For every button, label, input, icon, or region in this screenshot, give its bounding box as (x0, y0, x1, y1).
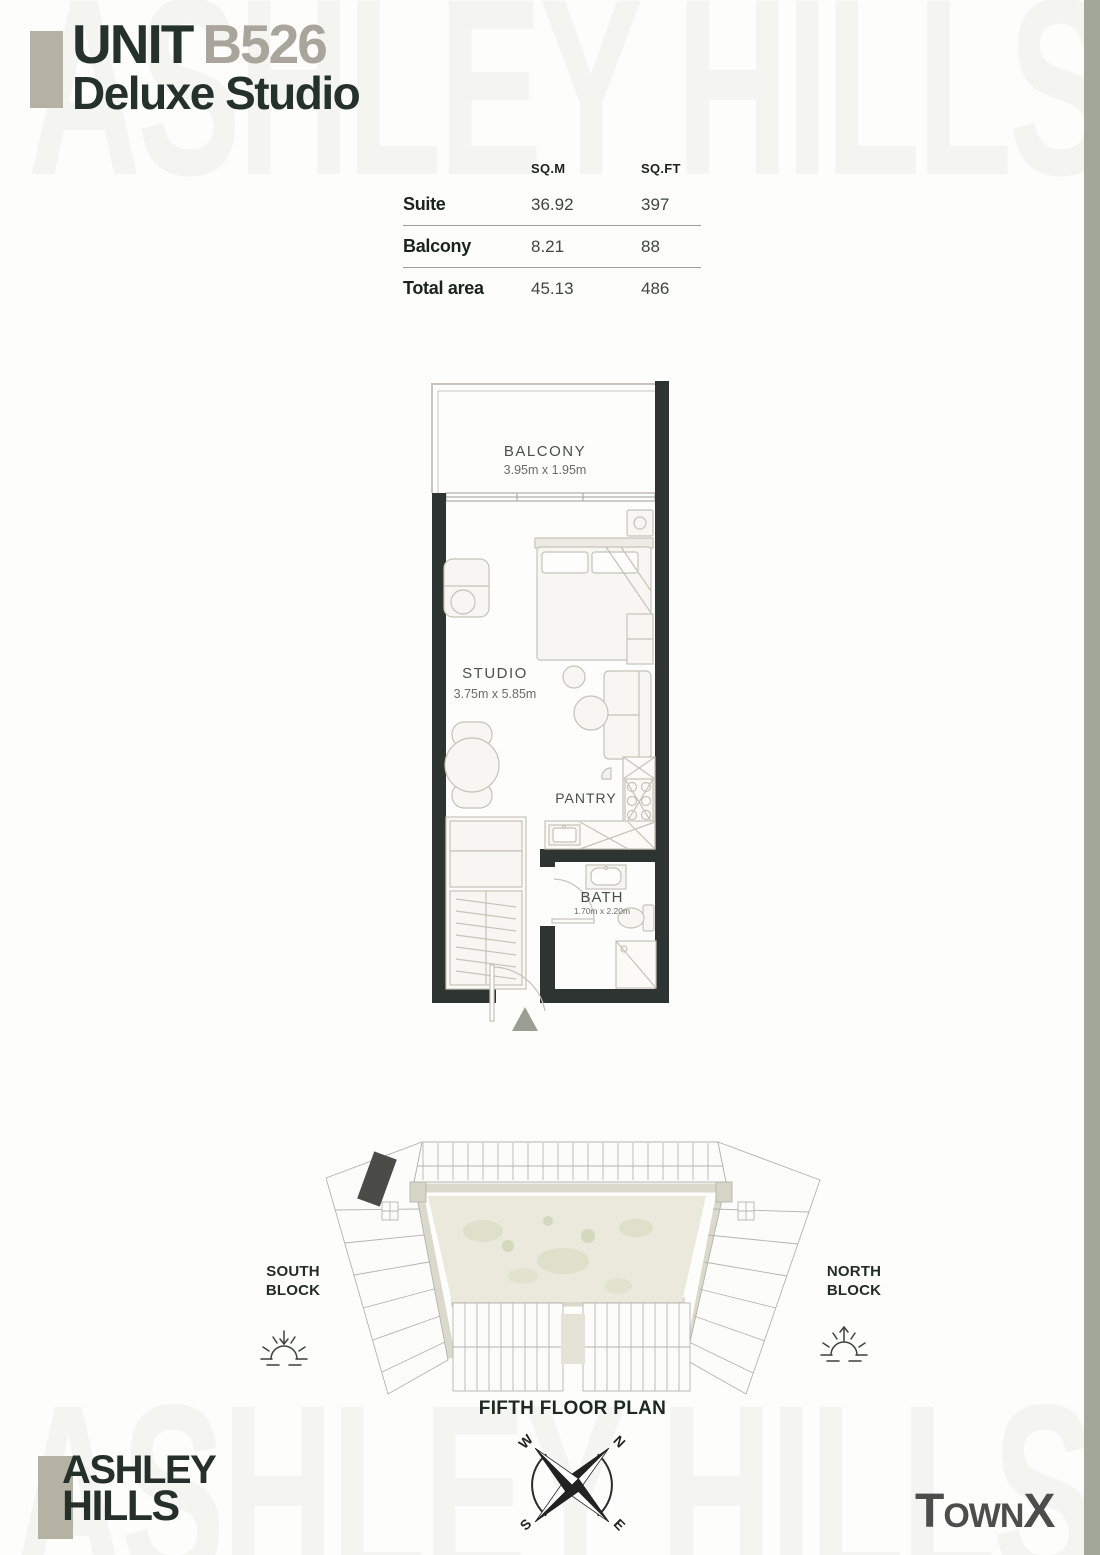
row-label: Total area (403, 278, 531, 299)
dining-set (445, 722, 499, 808)
poufs (563, 666, 608, 730)
floor-plan-caption: FIFTH FLOOR PLAN (430, 1398, 715, 1420)
row-sqft: 397 (641, 195, 701, 215)
row-sqft: 486 (641, 279, 701, 299)
unit-title: UNITB526 (72, 17, 326, 72)
site-key-plan (318, 1136, 830, 1404)
page-edge-strip (1084, 0, 1100, 1555)
sunset-icon (258, 1326, 310, 1372)
bath-dim: 1.70m x 2.20m (574, 906, 630, 916)
studio-label: STUDIO (462, 665, 528, 682)
compass-s: S (517, 1516, 535, 1534)
studio-dim: 3.75m x 5.85m (454, 687, 537, 701)
balcony-dim: 3.95m x 1.95m (504, 463, 587, 477)
col-header-sqft: SQ.FT (641, 161, 701, 184)
desk (444, 559, 489, 617)
bath-sink (586, 865, 626, 889)
courtyard (428, 1196, 706, 1302)
bath-label: BATH (581, 889, 624, 906)
wardrobe (446, 817, 526, 989)
row-sqm: 8.21 (531, 237, 641, 257)
kitchen-counter (545, 821, 655, 849)
row-label: Suite (403, 194, 531, 215)
compass-n: N (610, 1432, 628, 1450)
compass-star (535, 1448, 609, 1522)
table-header-empty (403, 165, 531, 173)
unit-floor-plan: BALCONY 3.95m x 1.95m STUDIO 3.75m x 5.8… (428, 381, 681, 1042)
townx-logo: TownX (915, 1488, 1054, 1536)
row-sqm: 36.92 (531, 195, 641, 215)
entry-marker-triangle (512, 1007, 538, 1031)
compass-w: W (515, 1431, 536, 1452)
row-sqft: 88 (641, 237, 701, 257)
title-accent-bar (30, 31, 63, 108)
table-header-row: SQ.M SQ.FT (403, 161, 701, 184)
compass-e: E (611, 1516, 629, 1534)
row-label: Balcony (403, 236, 531, 257)
sunrise-icon (818, 1322, 870, 1368)
console-table (627, 614, 653, 664)
ashley-hills-logo-line2: HILLS (62, 1485, 179, 1528)
balcony-window (446, 493, 655, 501)
area-table: SQ.M SQ.FT Suite 36.92 397 Balcony 8.21 … (403, 161, 701, 309)
sofa (604, 671, 651, 759)
table-row-balcony: Balcony 8.21 88 (403, 225, 701, 267)
townx-logo-t: T (915, 1485, 943, 1538)
brochure-page: ASHLEY HILLS ASHLEY HILLS UNITB526 Delux… (0, 0, 1100, 1555)
pantry-label: PANTRY (555, 790, 617, 806)
row-sqm: 45.13 (531, 279, 641, 299)
table-row-suite: Suite 36.92 397 (403, 184, 701, 225)
balcony-label: BALCONY (504, 443, 586, 460)
nightstand (627, 510, 653, 536)
south-block-label: SOUTH BLOCK (253, 1263, 333, 1301)
table-row-total: Total area 45.13 486 (403, 267, 701, 309)
unit-label: UNIT (72, 13, 192, 75)
north-block-label: NORTH BLOCK (814, 1263, 894, 1301)
unit-number: B526 (202, 13, 325, 75)
compass-rose: N W S E (515, 1428, 630, 1543)
col-header-sqm: SQ.M (531, 161, 641, 184)
shower (616, 941, 656, 988)
townx-logo-x: X (1023, 1485, 1054, 1538)
townx-logo-own: own (943, 1485, 1023, 1538)
unit-type: Deluxe Studio (72, 70, 359, 116)
